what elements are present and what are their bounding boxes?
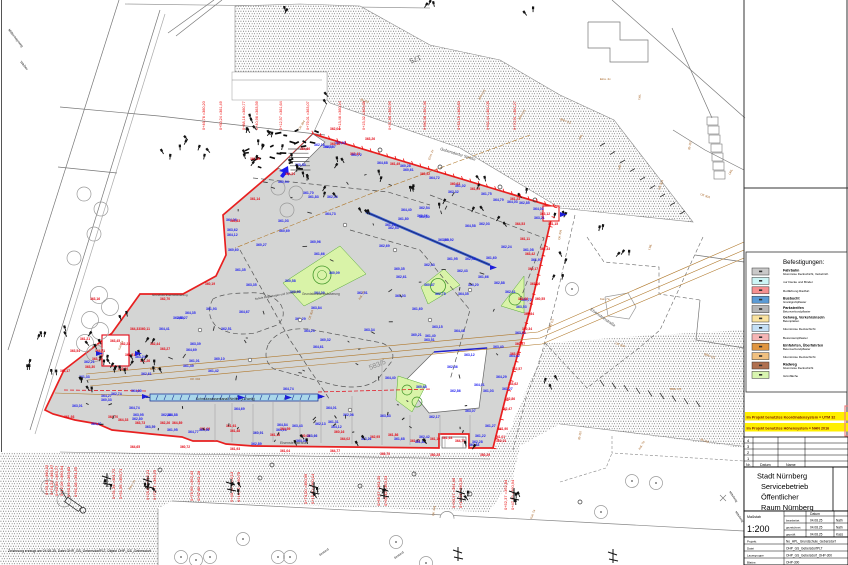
svg-text:Granitgroßpflaster: Granitgroßpflaster — [783, 300, 806, 304]
svg-text:364,01: 364,01 — [326, 406, 337, 410]
svg-text:360,35: 360,35 — [394, 267, 405, 271]
svg-text:361,60: 361,60 — [412, 307, 423, 311]
svg-text:362,17: 362,17 — [429, 415, 440, 419]
svg-text:0+75,69 =362,43: 0+75,69 =362,43 — [189, 470, 194, 501]
svg-text:0+31,34 =361,72: 0+31,34 =361,72 — [111, 468, 116, 499]
svg-text:364,02: 364,02 — [340, 437, 350, 441]
svg-text:363,84: 363,84 — [311, 306, 322, 310]
svg-text:OHP-300: OHP-300 — [786, 560, 800, 564]
svg-text:361,95: 361,95 — [447, 257, 458, 261]
svg-text:Eins. 2x: Eins. 2x — [600, 77, 611, 81]
svg-text:363,17: 363,17 — [60, 369, 70, 373]
svg-text:364,35: 364,35 — [185, 311, 196, 315]
svg-text:362,69: 362,69 — [379, 244, 390, 248]
svg-text:361,72: 361,72 — [351, 153, 362, 157]
svg-text:364,35: 364,35 — [458, 292, 469, 296]
svg-text:360,91: 360,91 — [253, 431, 263, 435]
svg-text:363,12: 363,12 — [540, 212, 550, 216]
svg-text:363,51: 363,51 — [424, 338, 435, 342]
svg-text:Stadt Nürnberg: Stadt Nürnberg — [757, 472, 807, 481]
svg-text:361,02: 361,02 — [455, 184, 466, 188]
svg-text:362,61: 362,61 — [505, 290, 516, 294]
svg-text:364,68: 364,68 — [377, 161, 388, 165]
svg-text:04.08.25: 04.08.25 — [810, 533, 823, 537]
svg-text:363,16: 363,16 — [90, 297, 100, 301]
svg-text:0+51,95 =363,71: 0+51,95 =363,71 — [118, 468, 123, 499]
svg-text:360,27: 360,27 — [256, 243, 267, 247]
svg-text:361,75: 361,75 — [481, 192, 492, 196]
svg-text:361,80: 361,80 — [398, 217, 409, 221]
svg-text:361,14: 361,14 — [250, 197, 260, 201]
svg-text:364,23: 364,23 — [304, 329, 315, 333]
svg-text:362,59: 362,59 — [173, 316, 184, 320]
svg-text:362,95: 362,95 — [370, 435, 380, 439]
svg-text:364,12: 364,12 — [331, 425, 342, 429]
svg-text:0+62,44 =361,05: 0+62,44 =361,05 — [486, 101, 490, 130]
svg-text:361,03: 361,03 — [278, 219, 289, 223]
svg-text:362,61: 362,61 — [141, 372, 152, 376]
svg-text:363,66: 363,66 — [307, 434, 317, 438]
svg-text:360,33: 360,33 — [101, 398, 112, 402]
svg-text:360,72: 360,72 — [180, 445, 190, 449]
svg-text:364,40: 364,40 — [385, 376, 396, 380]
svg-text:Grünfläche: Grünfläche — [783, 374, 798, 378]
svg-text:Grundstücksentwässerung: Grundstücksentwässerung — [302, 292, 340, 296]
svg-text:360,21: 360,21 — [411, 333, 422, 337]
svg-text:Datei: Datei — [747, 546, 754, 550]
svg-text:nur Decke und Binder: nur Decke und Binder — [783, 280, 813, 284]
svg-text:360,58: 360,58 — [285, 279, 296, 283]
svg-text:361,97: 361,97 — [531, 258, 542, 262]
svg-text:362,53: 362,53 — [388, 226, 399, 230]
svg-text:361,68: 361,68 — [394, 437, 405, 441]
svg-text:363,83: 363,83 — [230, 219, 240, 223]
svg-text:363,42: 363,42 — [525, 252, 535, 256]
svg-text:363,30: 363,30 — [85, 365, 95, 369]
svg-text:362,61: 362,61 — [396, 275, 407, 279]
svg-text:362,85: 362,85 — [519, 201, 530, 205]
svg-text:362,24: 362,24 — [501, 245, 512, 249]
svg-text:Nath: Nath — [836, 519, 843, 523]
svg-text:361,86: 361,86 — [388, 433, 398, 437]
svg-text:geprüft: geprüft — [786, 533, 796, 537]
svg-text:361,22: 361,22 — [475, 434, 486, 438]
svg-text:361,35: 361,35 — [235, 268, 246, 272]
svg-text:bearbeitet: bearbeitet — [786, 519, 800, 523]
svg-text:0+31,85 =362,99: 0+31,85 =362,99 — [388, 101, 392, 130]
svg-text:364,53: 364,53 — [515, 222, 525, 226]
svg-text:363,34: 363,34 — [524, 312, 534, 316]
svg-text:363,01: 363,01 — [72, 404, 83, 408]
svg-text:360,70: 360,70 — [380, 452, 390, 456]
svg-text:Datum: Datum — [810, 512, 820, 516]
svg-text:362,51: 362,51 — [221, 327, 232, 331]
svg-text:360,10: 360,10 — [214, 357, 225, 361]
svg-text:Maßstab: Maßstab — [747, 515, 761, 519]
svg-text:OK 304: OK 304 — [190, 377, 201, 381]
svg-text:Nr.: Nr. — [746, 463, 751, 467]
svg-text:362,26: 362,26 — [160, 421, 170, 425]
svg-text:361,48: 361,48 — [230, 429, 240, 433]
svg-text:362,06: 362,06 — [518, 297, 528, 301]
svg-text:360,25: 360,25 — [430, 453, 440, 457]
svg-text:Öffentlicher: Öffentlicher — [761, 493, 799, 502]
svg-text:bituminöse Deckschicht: bituminöse Deckschicht — [783, 355, 816, 359]
svg-text:0+15,32 =363,68: 0+15,32 =363,68 — [362, 101, 366, 130]
svg-text:364,80: 364,80 — [131, 389, 142, 393]
svg-text:0+40,96 =363,59: 0+40,96 =363,59 — [255, 101, 259, 130]
svg-text:364,74: 364,74 — [283, 387, 294, 391]
svg-text:361,60: 361,60 — [486, 256, 497, 260]
svg-text:Im Projekt benutztes Koordinat: Im Projekt benutztes Koordinatensystem =… — [747, 415, 836, 419]
svg-text:361,11: 361,11 — [520, 237, 530, 241]
svg-text:0+86,38 =361,36: 0+86,38 =361,36 — [423, 101, 427, 130]
svg-text:361,93: 361,93 — [64, 415, 74, 419]
svg-text:Betonverbundpflaster: Betonverbundpflaster — [783, 310, 811, 314]
svg-text:362,33: 362,33 — [540, 247, 550, 251]
svg-text:360,29: 360,29 — [480, 453, 490, 457]
svg-text:361,01: 361,01 — [189, 359, 200, 363]
svg-text:0+12,06 =360,94: 0+12,06 =360,94 — [59, 465, 64, 496]
svg-text:0+37,86 =361,28: 0+37,86 =361,28 — [196, 470, 201, 501]
svg-text:362,89: 362,89 — [251, 442, 262, 446]
svg-text:Kat. 7a: Kat. 7a — [600, 297, 610, 301]
svg-text:364,74: 364,74 — [129, 406, 140, 410]
svg-text:361,61: 361,61 — [226, 424, 236, 428]
svg-text:362,42: 362,42 — [419, 435, 430, 439]
svg-text:360,68: 360,68 — [416, 385, 427, 389]
svg-text:361,66: 361,66 — [314, 252, 325, 256]
svg-text:0+74,00 =360,99: 0+74,00 =360,99 — [303, 473, 308, 504]
svg-text:0+91,08 =361,55: 0+91,08 =361,55 — [73, 466, 78, 497]
svg-text:364,75: 364,75 — [455, 439, 465, 443]
svg-text:Servicebetrieb: Servicebetrieb — [761, 482, 808, 491]
svg-text:364,12: 364,12 — [227, 233, 238, 237]
svg-text:361,49: 361,49 — [183, 364, 194, 368]
svg-text:364,88: 364,88 — [167, 413, 178, 417]
svg-text:362,57: 362,57 — [512, 367, 522, 371]
svg-text:Projekt: Projekt — [747, 539, 757, 543]
svg-text:363,15: 363,15 — [432, 325, 443, 329]
svg-text:364,48: 364,48 — [454, 329, 465, 333]
svg-text:360,87: 360,87 — [424, 283, 435, 287]
svg-text:364,59: 364,59 — [280, 427, 290, 431]
svg-text:Betonplatten: Betonplatten — [783, 319, 800, 323]
svg-text:361,10: 361,10 — [430, 437, 440, 441]
svg-text:364,79: 364,79 — [493, 198, 504, 202]
svg-text:Im Projekt benutztes Höhensyst: Im Projekt benutztes Höhensystem = NHN 2… — [747, 426, 830, 430]
svg-text:360,01: 360,01 — [496, 439, 506, 443]
svg-text:364,61: 364,61 — [313, 345, 324, 349]
svg-text:362,70: 362,70 — [160, 297, 170, 301]
svg-text:361,40: 361,40 — [425, 334, 436, 338]
svg-text:364,41: 364,41 — [159, 327, 170, 331]
svg-text:361,49: 361,49 — [390, 162, 400, 166]
svg-text:361,31: 361,31 — [328, 420, 339, 424]
svg-text:362,47: 362,47 — [502, 407, 512, 411]
svg-text:364,77: 364,77 — [188, 430, 199, 434]
svg-text:364,72: 364,72 — [429, 176, 440, 180]
svg-text:0+88,16 =360,77: 0+88,16 =360,77 — [242, 101, 246, 130]
svg-text:0+13,46 =360,14: 0+13,46 =360,14 — [338, 101, 342, 130]
svg-text:362,06: 362,06 — [343, 413, 354, 417]
svg-text:364,29: 364,29 — [496, 375, 507, 379]
svg-text:0+93,97 =361,06: 0+93,97 =361,06 — [451, 477, 456, 508]
svg-text:363,91: 363,91 — [510, 352, 520, 356]
svg-text:0+52,37 =362,84: 0+52,37 =362,84 — [503, 479, 508, 510]
svg-text:0+70,91 =361,27: 0+70,91 =361,27 — [513, 101, 517, 130]
svg-text:363,62: 363,62 — [227, 228, 238, 232]
svg-text:Zeichnung erzeugt am 04.08.25,: Zeichnung erzeugt am 04.08.25, Datei OHP… — [8, 549, 151, 553]
svg-text:360,69: 360,69 — [279, 229, 290, 233]
svg-text:Eisensteinstraße: Eisensteinstraße — [280, 441, 307, 445]
svg-text:363,40: 363,40 — [493, 345, 504, 349]
svg-text:0+50,24 =361,49: 0+50,24 =361,49 — [219, 101, 223, 130]
svg-text:364,77: 364,77 — [330, 449, 340, 453]
svg-text:364,58: 364,58 — [465, 224, 476, 228]
svg-text:361,93: 361,93 — [230, 447, 240, 451]
svg-text:364,69: 364,69 — [186, 348, 197, 352]
svg-text:362,88: 362,88 — [494, 281, 505, 285]
svg-text:360,34: 360,34 — [522, 327, 532, 331]
svg-text:bituminöse Deckschicht: bituminöse Deckschicht — [783, 327, 816, 331]
svg-text:364,65: 364,65 — [130, 445, 140, 449]
svg-text:360,96: 360,96 — [310, 240, 321, 244]
svg-text:OHP_GS_GebersdorfPLT: OHP_GS_GebersdorfPLT — [786, 546, 823, 550]
svg-text:OHP_GS_Gebersdorf_OHP-300: OHP_GS_Gebersdorf_OHP-300 — [786, 553, 832, 557]
svg-text:361,37: 361,37 — [325, 145, 336, 149]
svg-text:361,42: 361,42 — [208, 369, 219, 373]
svg-text:363,62: 363,62 — [508, 382, 518, 386]
svg-text:Rotfärbung Radfurt: Rotfärbung Radfurt — [783, 289, 809, 293]
svg-text:gezeichnet: gezeichnet — [786, 526, 801, 530]
svg-text:363,73: 363,73 — [135, 421, 145, 425]
svg-text:361,83: 361,83 — [308, 195, 319, 199]
svg-text:364,67: 364,67 — [239, 310, 250, 314]
svg-text:363,26: 363,26 — [365, 137, 375, 141]
svg-text:364,33: 364,33 — [118, 418, 128, 422]
svg-text:363,34: 363,34 — [364, 328, 375, 332]
svg-text:364,66: 364,66 — [300, 147, 310, 151]
svg-text:362,74: 362,74 — [111, 392, 122, 396]
svg-text:bituminöse Deckschicht: bituminöse Deckschicht — [783, 366, 814, 370]
svg-text:04.08.25: 04.08.25 — [810, 526, 823, 530]
svg-text:361,27: 361,27 — [502, 387, 513, 391]
svg-text:Kass: Kass — [836, 533, 843, 537]
svg-text:361,27: 361,27 — [485, 424, 496, 428]
svg-text:360,97: 360,97 — [515, 342, 525, 346]
svg-text:362,03: 362,03 — [479, 222, 490, 226]
svg-text:363,59: 363,59 — [145, 425, 155, 429]
svg-text:0+79,01 =363,07: 0+79,01 =363,07 — [306, 101, 310, 130]
svg-text:363,21: 363,21 — [534, 216, 545, 220]
svg-text:362,54: 362,54 — [419, 206, 430, 210]
svg-text:364,33: 364,33 — [130, 327, 140, 331]
svg-text:363,12: 363,12 — [464, 353, 475, 357]
svg-text:363,54: 363,54 — [70, 349, 80, 353]
svg-text:362,13: 362,13 — [315, 422, 326, 426]
svg-text:Grundstücksentwässerung: Grundstücksentwässerung — [152, 293, 188, 297]
svg-text:360,61: 360,61 — [403, 168, 414, 172]
svg-text:Name: Name — [786, 463, 796, 467]
svg-text:361,21: 361,21 — [80, 337, 90, 341]
svg-text:Datum: Datum — [760, 463, 771, 467]
svg-text:362,03: 362,03 — [424, 263, 435, 267]
svg-text:362,46: 362,46 — [447, 365, 458, 369]
svg-text:363,43: 363,43 — [292, 424, 303, 428]
svg-text:361,09: 361,09 — [470, 187, 480, 191]
svg-text:362,86: 362,86 — [450, 389, 461, 393]
svg-text:Layergruppe: Layergruppe — [747, 553, 764, 557]
svg-text:361,63: 361,63 — [442, 436, 452, 440]
svg-text:362,16: 362,16 — [314, 143, 325, 147]
svg-text:364,51: 364,51 — [285, 172, 295, 176]
svg-text:361,45: 361,45 — [250, 157, 260, 161]
svg-text:364,40: 364,40 — [401, 208, 412, 212]
svg-text:0+72,77 =363,29: 0+72,77 =363,29 — [152, 469, 157, 500]
svg-text:364,01: 364,01 — [474, 383, 485, 387]
svg-text:362,48: 362,48 — [465, 257, 476, 261]
svg-text:361,04: 361,04 — [280, 449, 290, 453]
svg-text:Befestigungen:: Befestigungen: — [783, 259, 825, 266]
svg-text:BRH 0,5: BRH 0,5 — [670, 387, 682, 391]
svg-text:Blattnr.: Blattnr. — [747, 560, 757, 564]
svg-text:364,73: 364,73 — [325, 212, 336, 216]
svg-text:361,03: 361,03 — [483, 389, 494, 393]
svg-text:bituminöse Deckschicht, Verkeh: bituminöse Deckschicht, Verkehrsfl. — [783, 272, 829, 276]
svg-text:360,19: 360,19 — [205, 282, 215, 286]
svg-text:363,35: 363,35 — [246, 283, 257, 287]
svg-text:0+33,15 =363,83: 0+33,15 =363,83 — [457, 101, 461, 130]
svg-text:360,16: 360,16 — [334, 430, 344, 434]
svg-text:364,03: 364,03 — [533, 207, 544, 211]
svg-text:360,60: 360,60 — [228, 248, 239, 252]
svg-text:363,20: 363,20 — [468, 283, 479, 287]
svg-text:0+12,57 =361,64: 0+12,57 =361,64 — [279, 101, 283, 130]
svg-text:Schmutzwasserkanal Weiher (1.Z: Schmutzwasserkanal Weiher (1.Zweig) — [196, 397, 255, 401]
svg-text:363,39: 363,39 — [190, 342, 201, 346]
svg-text:Betonsteinpflaster: Betonsteinpflaster — [783, 336, 808, 340]
svg-text:361,93: 361,93 — [206, 307, 217, 311]
svg-text:362,43: 362,43 — [457, 269, 468, 273]
svg-text:361,15: 361,15 — [548, 222, 558, 226]
svg-text:363,53: 363,53 — [516, 305, 527, 309]
svg-text:362,75: 362,75 — [435, 292, 446, 296]
svg-text:0+46,76 =360,20: 0+46,76 =360,20 — [202, 101, 206, 130]
svg-text:Betonverbundpflaster: Betonverbundpflaster — [783, 347, 811, 351]
svg-text:1:200: 1:200 — [747, 524, 770, 534]
svg-text:Nath: Nath — [836, 526, 843, 530]
svg-text:04.08.25: 04.08.25 — [810, 519, 823, 523]
svg-text:364,03: 364,03 — [507, 200, 518, 204]
svg-text:361,66: 361,66 — [478, 275, 489, 279]
svg-text:360,32: 360,32 — [320, 338, 331, 342]
svg-text:363,27: 363,27 — [160, 347, 170, 351]
svg-text:360,36: 360,36 — [417, 214, 428, 218]
svg-text:No_HPL_Grundschule_Gebersdorf: No_HPL_Grundschule_Gebersdorf — [786, 539, 836, 543]
svg-text:0+56,97 =361,30: 0+56,97 =361,30 — [376, 475, 381, 506]
svg-text:360,17: 360,17 — [528, 267, 538, 271]
svg-text:360,55: 360,55 — [535, 297, 545, 301]
svg-text:360,09: 360,09 — [329, 271, 340, 275]
svg-text:0+50,39 =363,83: 0+50,39 =363,83 — [66, 466, 71, 497]
svg-text:363,92: 363,92 — [443, 238, 454, 242]
svg-text:364,69: 364,69 — [234, 407, 245, 411]
svg-text:364,89: 364,89 — [172, 421, 182, 425]
svg-text:361,95: 361,95 — [167, 428, 178, 432]
svg-text:360,11: 360,11 — [140, 327, 150, 331]
svg-text:360,94: 360,94 — [278, 180, 289, 184]
svg-text:363,83: 363,83 — [380, 414, 391, 418]
svg-text:363,07: 363,07 — [465, 409, 476, 413]
